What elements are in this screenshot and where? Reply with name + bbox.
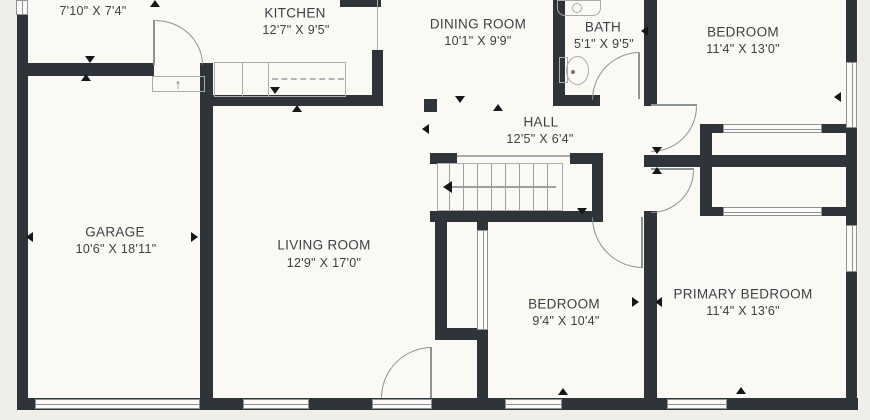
room-dimensions-kitchen: 12'7" X 9'5" [262,23,329,37]
opening-marker [85,56,95,63]
room-name-bedroom-bottom: BEDROOM [528,297,600,312]
window [846,62,857,128]
window [243,399,309,409]
room-name-hall: HALL [524,115,559,130]
opening-marker [292,105,302,112]
room-dimensions-hall: 12'5" X 6'4" [506,132,573,146]
window [16,0,28,15]
sliding-door [477,230,488,330]
wall [477,222,488,230]
room-name-living-room: LIVING ROOM [277,238,370,253]
door-leaf [430,347,432,398]
entry-threshold [372,399,432,409]
room-dimensions-living-room: 12'9" X 17'0" [287,256,362,270]
step-up-arrow: ↑ [175,77,182,92]
room-dimensions-primary-bedroom: 11'4" X 13'6" [706,304,780,318]
room-dimensions-garage: 10'6" X 18'11" [76,242,157,256]
room-dimensions-bath: 5'1" X 9'5" [574,37,634,51]
opening-marker [641,26,648,36]
wall [430,211,593,222]
room-name-garage: GARAGE [85,225,145,240]
wall [644,0,657,106]
room-name-dining-room: DINING ROOM [430,17,526,32]
opening-marker [652,147,662,154]
door-leaf [638,53,640,99]
stair-direction-arrow [443,181,452,193]
opening-marker [632,297,639,307]
window [505,399,562,409]
room-dimensions-bedroom-top: 11'4" X 13'0" [706,42,780,56]
opening-marker [150,0,160,7]
opening-marker [81,74,91,81]
wall [477,340,488,398]
window [846,225,857,272]
room-dimensions-dining-room: 10'1" X 9'9" [444,34,511,48]
counter-divider [268,63,269,96]
stair-direction-line [452,186,556,188]
floor-plan: ↑7'10" X 7'4"KITCHEN12'7" X 9'5"DINING R… [0,0,870,420]
room-name-bedroom-top: BEDROOM [707,25,779,40]
kitchen-pass-line [377,0,378,50]
window [667,399,727,409]
room-name-bath: BATH [585,20,621,35]
closet-sliding-door [723,207,822,216]
wall [200,63,213,410]
wall [703,124,723,133]
room-name-primary-bedroom: PRIMARY BEDROOM [673,287,812,302]
room-dimensions-upper-room: 7'10" X 7'4" [59,4,126,18]
wall [372,50,383,106]
room-name-kitchen: KITCHEN [264,6,325,21]
opening-marker [26,232,33,242]
opening-marker [493,104,503,111]
opening-marker [558,388,568,395]
opening-marker [655,297,662,307]
opening-marker [455,96,465,103]
door-leaf [641,217,643,268]
opening-marker [577,208,587,215]
room-dimensions-bedroom-bottom: 9'4" X 10'4" [532,314,599,328]
door-leaf [153,20,155,65]
stair-rail [457,155,570,157]
opening-marker [834,92,841,102]
toilet-bowl-icon [566,56,589,85]
opening-marker [652,167,662,174]
door-leaf [651,104,697,106]
wall [644,155,846,167]
wall [822,207,846,216]
toilet-flush-icon [571,70,575,74]
opening-marker [736,387,746,394]
wall [424,99,437,112]
opening-marker [191,232,198,242]
wall [340,0,381,7]
wall [435,222,447,330]
opening-marker [270,87,280,94]
wall [703,207,723,216]
dishwasher-dash [272,78,344,80]
wall [592,153,603,222]
wall [700,124,712,216]
sink-drain-icon [572,3,582,13]
counter-divider [242,63,243,96]
opening-marker [422,124,429,134]
closet-sliding-door [723,124,822,133]
garage-door [35,399,200,409]
wall [822,124,846,133]
